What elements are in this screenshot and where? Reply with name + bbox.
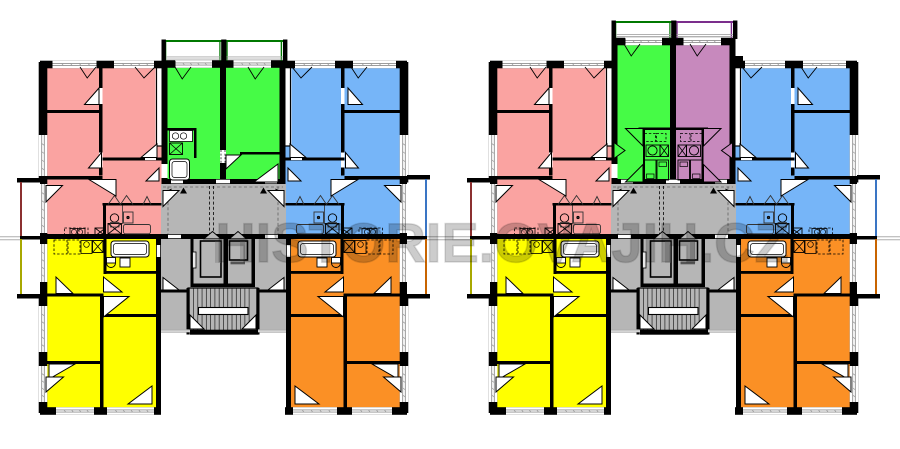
svg-text:HISTORIE.OVAJIH.CZ: HISTORIE.OVAJIH.CZ (215, 211, 789, 274)
